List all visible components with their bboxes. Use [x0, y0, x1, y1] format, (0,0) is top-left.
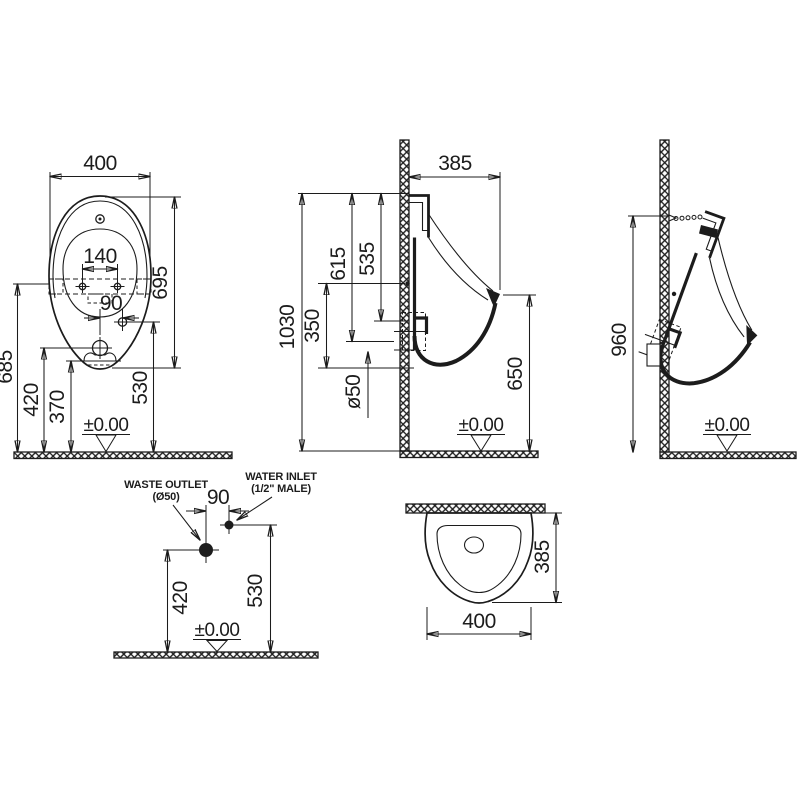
urinal-installation-drawing: 400 140 90 695 685 [0, 0, 800, 800]
floor [14, 452, 232, 459]
dim-offset-detail: 90 [186, 486, 249, 540]
dim-total-height: 1030 [276, 194, 302, 452]
floor [400, 451, 538, 458]
datum-side: ±0.00 [457, 415, 505, 451]
hanger-chain [669, 215, 718, 238]
dim-rim-height-text: 370 [46, 390, 69, 424]
dim-total-height-text: 1030 [276, 305, 299, 350]
dim-mount-height-text: 685 [0, 350, 17, 384]
dim-outlet-height-detail-text: 420 [169, 581, 192, 615]
urinal-section [394, 196, 500, 365]
dim-mount-height: 685 [0, 284, 50, 452]
datum-triangle [96, 435, 116, 452]
wall [400, 140, 409, 451]
wall [406, 504, 545, 513]
dim-front-height-text: 695 [149, 266, 172, 300]
hanger-bracket [699, 225, 718, 238]
datum-detail: ±0.00 [193, 620, 241, 652]
dim-lip-height: 650 [503, 295, 536, 451]
dim-top-width: 400 [427, 607, 531, 640]
datum-front: ±0.00 [82, 415, 130, 452]
dim-inlet-height-detail-text: 530 [244, 574, 267, 608]
waste-outlet-callout: WASTE OUTLET (Ø50) [124, 479, 208, 540]
fixing-dot [405, 281, 409, 285]
installation-view: 960 ±0.00 [608, 140, 796, 459]
datum-triangle [471, 435, 491, 451]
dim-top-to-outlet-text: 615 [327, 247, 350, 281]
dim-top-width-text: 400 [462, 610, 496, 633]
floor [660, 452, 796, 459]
dim-inlet-height-detail: 530 [238, 525, 277, 652]
dim-outlet-height-front-text: 420 [20, 383, 43, 417]
dim-mount-to-bottom-text: 350 [301, 309, 324, 343]
dim-outlet-diameter-text: ø50 [342, 375, 365, 410]
connection-detail-view: WASTE OUTLET (Ø50) WATER INLET (1/2" MAL… [114, 471, 318, 658]
dim-offset-detail-text: 90 [207, 486, 229, 509]
datum-detail-text: ±0.00 [195, 620, 240, 641]
dim-hanger-height-text: 960 [608, 323, 631, 357]
dim-inlet-offset-text: 90 [100, 292, 122, 315]
datum-front-text: ±0.00 [84, 415, 129, 436]
waste-outlet-size: (Ø50) [152, 491, 180, 503]
water-inlet-callout: WATER INLET (1/2" MALE) [237, 471, 317, 520]
dim-top-to-inlet-text: 535 [356, 242, 379, 276]
datum-install-text: ±0.00 [705, 415, 750, 436]
datum-triangle [717, 435, 737, 451]
water-inlet-size: (1/2" MALE) [251, 483, 311, 495]
datum-install: ±0.00 [703, 415, 751, 451]
dim-depth-text: 385 [438, 152, 472, 175]
dim-front-width-text: 400 [83, 152, 117, 175]
spud-box-outer [409, 196, 429, 238]
water-inlet-label: WATER INLET [245, 471, 317, 483]
floor [114, 652, 318, 658]
dim-mount-to-bottom: 350 [301, 284, 414, 369]
datum-triangle [207, 641, 227, 652]
dim-top-depth-text: 385 [531, 540, 554, 574]
water-inlet-point [220, 516, 238, 534]
technical-drawing-canvas: 400 140 90 695 685 [0, 0, 800, 800]
dim-lip-height-text: 650 [504, 357, 527, 391]
side-section-view: 385 1030 615 535 350 ø50 [276, 140, 538, 458]
dim-outlet-diameter: ø50 [342, 352, 368, 418]
dim-rim-height: 370 [46, 361, 79, 452]
front-view: 400 140 90 695 685 [0, 152, 232, 459]
bowl-curve-lower [429, 238, 489, 301]
waste-outlet-label: WASTE OUTLET [124, 479, 208, 491]
spud-box-inner [409, 203, 429, 231]
dim-outlet-height-detail: 420 [163, 550, 197, 652]
wall [660, 140, 669, 452]
top-view: 385 400 [406, 504, 562, 640]
datum-side-text: ±0.00 [459, 415, 504, 436]
through-wall-fitting [647, 344, 660, 366]
top-fixing-hole-center [99, 218, 102, 221]
dim-inlet-height-front-text: 530 [129, 371, 152, 405]
dim-hole-spacing-text: 140 [83, 245, 117, 268]
